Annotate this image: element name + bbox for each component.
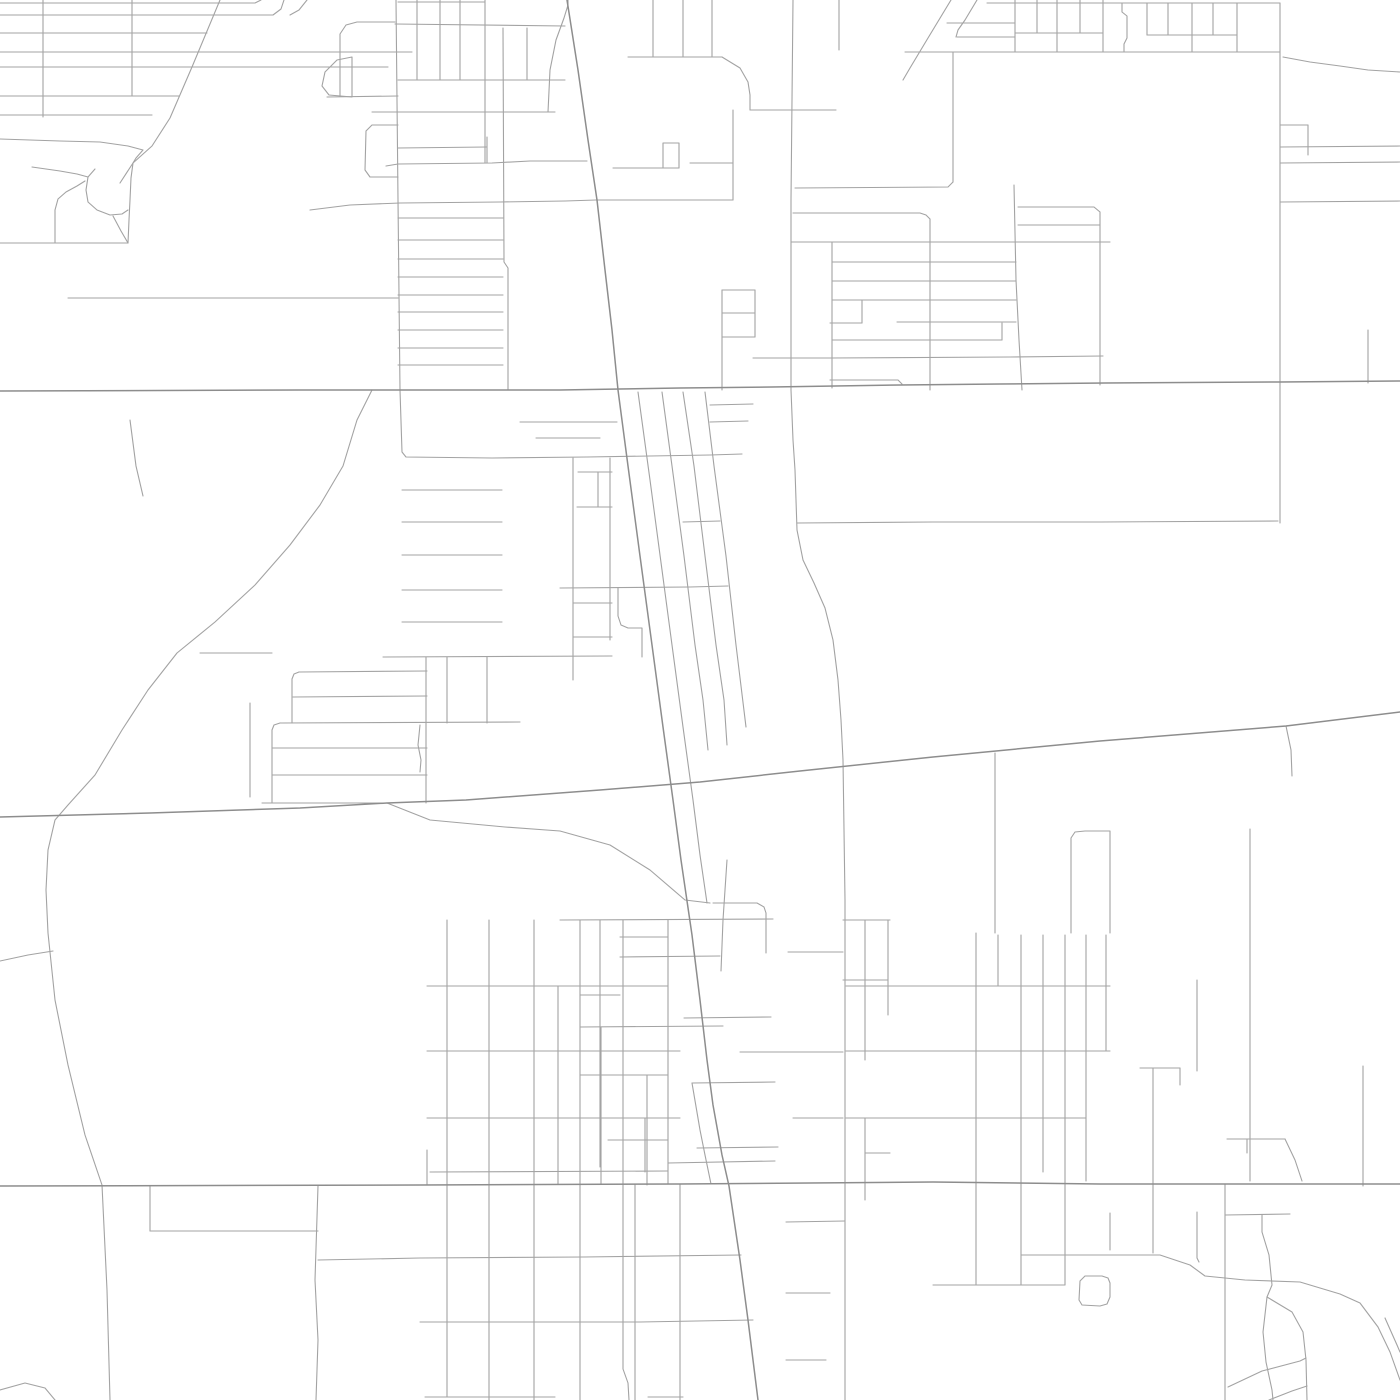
road-segment — [721, 860, 727, 971]
road-segment — [903, 0, 951, 80]
road-segment — [697, 1147, 778, 1148]
road-segment — [692, 1083, 711, 1184]
road-segment — [830, 380, 902, 384]
road-segment — [1280, 146, 1400, 147]
road-segment — [88, 169, 95, 177]
road-segment — [299, 671, 427, 672]
cross-road-north — [0, 381, 1400, 391]
road-segment — [1225, 1214, 1290, 1215]
road-segment — [318, 1255, 741, 1260]
road-segment — [791, 0, 793, 390]
road-segment — [684, 1017, 771, 1018]
road-segment — [365, 125, 398, 177]
road-segment — [113, 216, 128, 243]
road-segment — [692, 1082, 775, 1083]
road-segment — [383, 656, 612, 657]
street-map-canvas — [0, 0, 1400, 1400]
road-segment — [46, 390, 372, 1400]
road-segment — [1285, 1139, 1302, 1181]
road-segment — [797, 521, 1278, 523]
road-segment — [1014, 185, 1022, 390]
road-segment — [272, 723, 280, 803]
road-segment — [0, 1383, 55, 1400]
road-segment — [310, 200, 733, 210]
road-segment — [1071, 831, 1110, 933]
road-segment — [1283, 57, 1400, 72]
road-segment — [1122, 3, 1127, 52]
road-segment — [668, 1161, 775, 1163]
road-segment — [315, 1186, 318, 1400]
road-segment — [0, 139, 143, 243]
road-segment — [710, 404, 753, 405]
road-segment — [0, 951, 53, 961]
road-segment — [290, 0, 307, 15]
major-roads-layer — [0, 0, 1400, 1400]
road-segment — [722, 57, 750, 110]
road-segment — [663, 143, 679, 168]
cross-road-south — [0, 1182, 1400, 1186]
road-segment — [1280, 201, 1400, 202]
map-viewport — [0, 0, 1400, 1400]
road-segment — [580, 1026, 723, 1027]
road-segment — [1228, 1358, 1306, 1387]
road-segment — [1197, 1212, 1199, 1262]
road-segment — [623, 920, 629, 1400]
road-segment — [340, 22, 395, 96]
road-segment — [395, 24, 565, 26]
road-segment — [683, 392, 727, 745]
highway-diagonal — [0, 712, 1400, 817]
road-segment — [548, 0, 568, 112]
road-segment — [956, 0, 977, 37]
road-segment — [705, 392, 746, 727]
road-segment — [1280, 162, 1400, 163]
road-segment — [620, 956, 720, 957]
road-segment — [55, 181, 85, 243]
road-segment — [618, 588, 642, 657]
road-segment — [793, 213, 930, 219]
road-segment — [753, 356, 1103, 358]
road-segment — [791, 390, 845, 1400]
road-segment — [713, 903, 766, 953]
road-segment — [1021, 1255, 1400, 1380]
road-segment — [786, 1221, 845, 1222]
road-segment — [1267, 1297, 1307, 1400]
road-segment — [662, 392, 708, 750]
road-segment — [398, 147, 487, 148]
road-segment — [560, 919, 773, 920]
road-segment — [130, 420, 143, 496]
road-segment — [0, 0, 261, 3]
road-segment — [710, 421, 748, 422]
minor-roads-layer — [0, 0, 1400, 1400]
road-segment — [1262, 1232, 1273, 1400]
road-segment — [795, 182, 953, 188]
road-segment — [420, 1320, 753, 1322]
road-segment — [1286, 726, 1292, 776]
railroad-diagonal — [567, 0, 758, 1400]
road-segment — [430, 1171, 668, 1172]
road-segment — [1269, 1386, 1307, 1400]
road-segment — [1079, 1276, 1110, 1306]
road-segment — [293, 696, 427, 697]
road-segment — [387, 803, 710, 903]
road-segment — [32, 167, 128, 215]
road-segment — [322, 57, 352, 97]
road-segment — [503, 28, 508, 390]
road-segment — [120, 0, 220, 183]
road-segment — [280, 722, 520, 723]
road-segment — [1018, 207, 1100, 212]
road-segment — [683, 521, 720, 522]
